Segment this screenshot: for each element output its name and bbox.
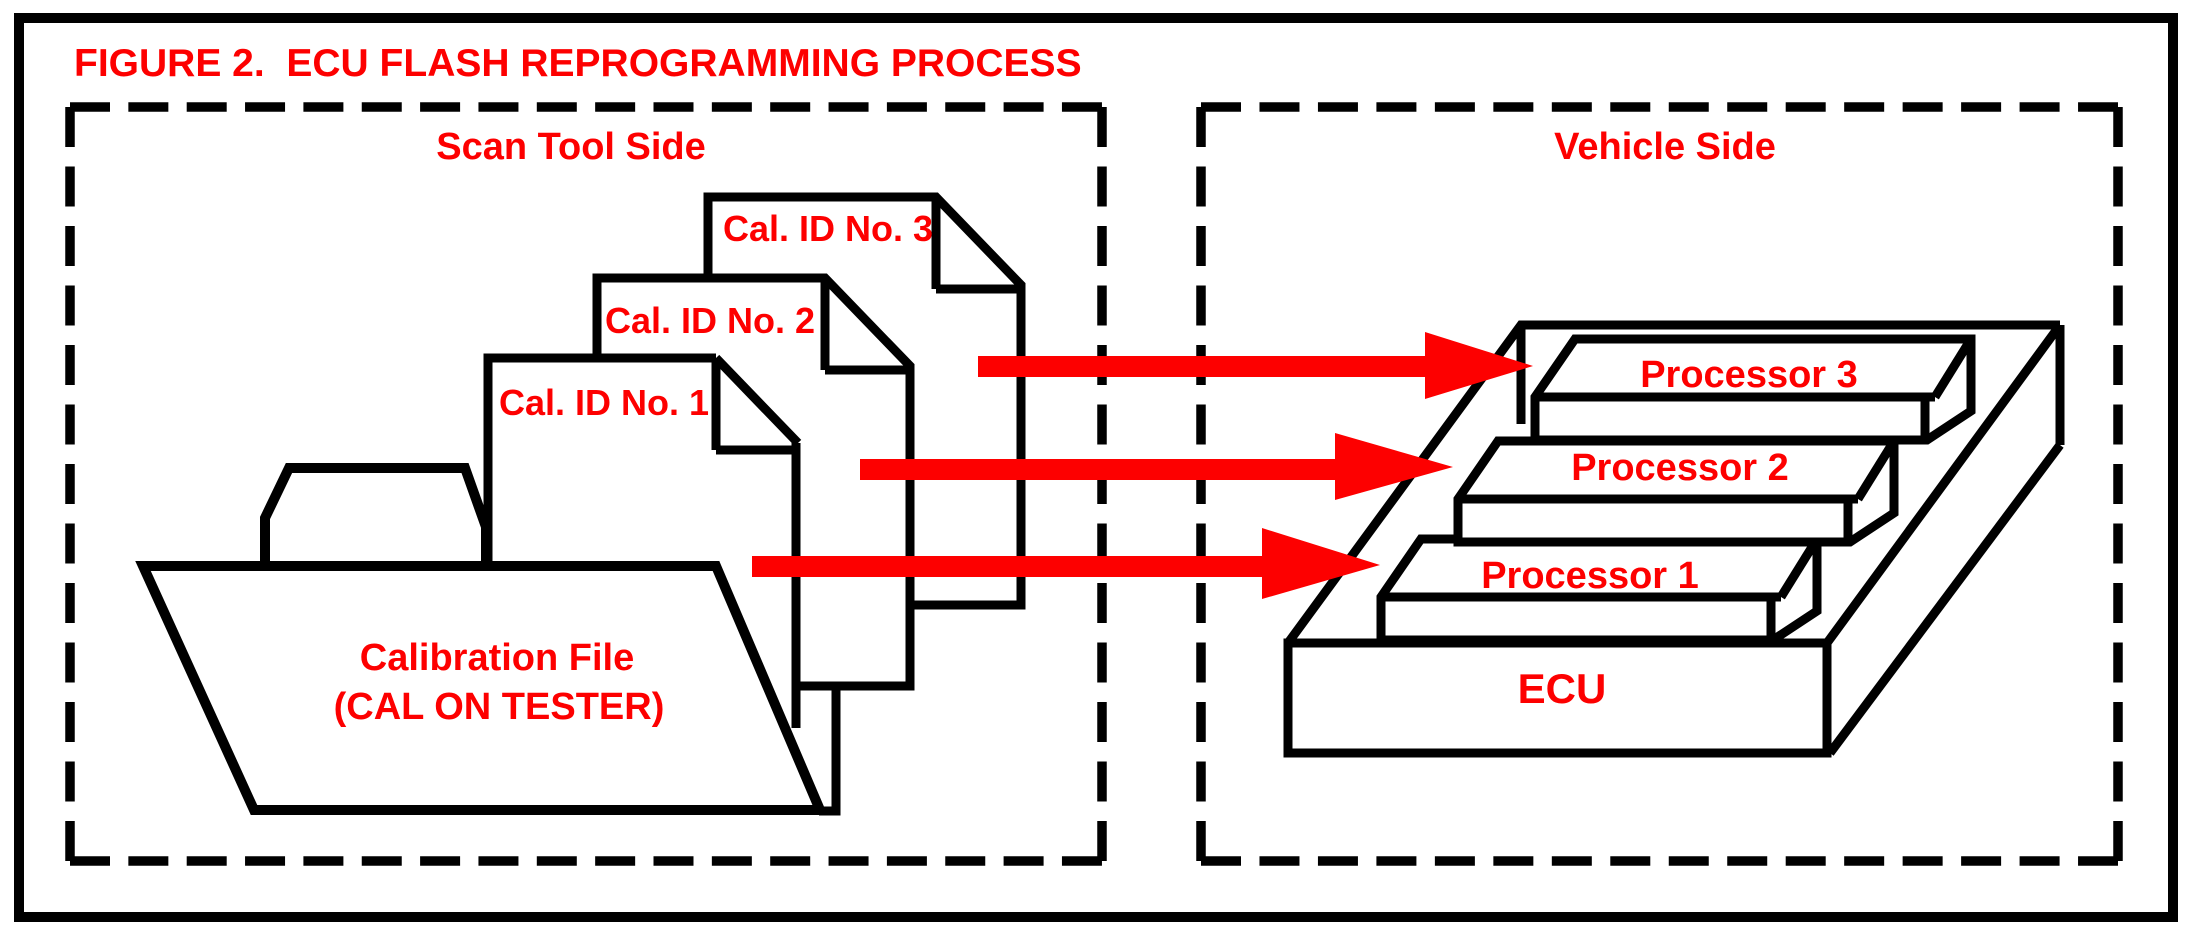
svg-text:Calibration File: Calibration File bbox=[360, 637, 634, 679]
svg-text:Cal. ID No. 2: Cal. ID No. 2 bbox=[605, 300, 815, 341]
svg-text:Processor 3: Processor 3 bbox=[1640, 354, 1858, 396]
svg-text:Scan Tool Side: Scan Tool Side bbox=[436, 126, 706, 168]
svg-text:Vehicle Side: Vehicle Side bbox=[1554, 126, 1776, 168]
svg-text:Cal. ID No. 3: Cal. ID No. 3 bbox=[723, 208, 933, 249]
svg-text:Processor 2: Processor 2 bbox=[1571, 447, 1789, 489]
svg-text:(CAL ON TESTER): (CAL ON TESTER) bbox=[334, 686, 665, 728]
svg-text:Cal. ID No. 1: Cal. ID No. 1 bbox=[499, 382, 709, 423]
svg-text:ECU: ECU bbox=[1518, 665, 1607, 712]
svg-text:FIGURE 2. ECU FLASH REPROGRAM: FIGURE 2. ECU FLASH REPROGRAMMING PROCES… bbox=[74, 42, 1082, 85]
svg-text:Processor 1: Processor 1 bbox=[1481, 555, 1699, 597]
